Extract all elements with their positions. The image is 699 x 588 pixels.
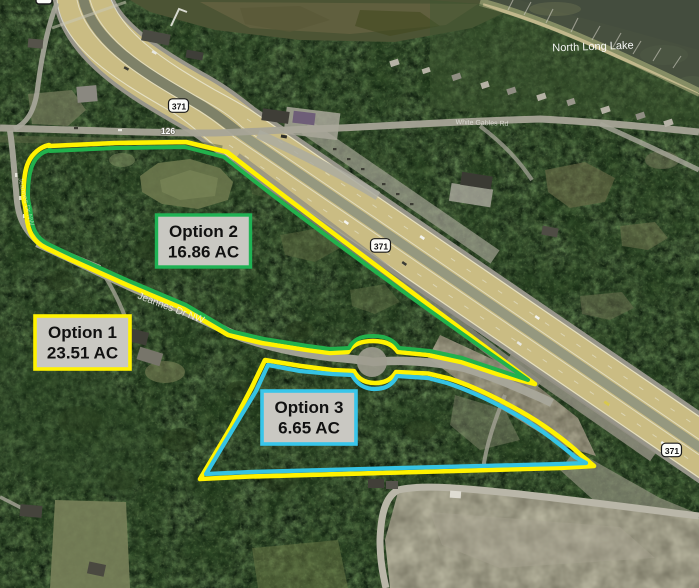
svg-text:Option 1: Option 1 <box>48 323 117 342</box>
svg-text:126: 126 <box>161 126 175 136</box>
svg-text:Option 3: Option 3 <box>275 398 344 417</box>
svg-text:23.51 AC: 23.51 AC <box>47 344 118 363</box>
svg-text:371: 371 <box>172 101 186 111</box>
svg-text:16.86 AC: 16.86 AC <box>168 243 239 262</box>
svg-text:Option 2: Option 2 <box>169 222 238 241</box>
svg-text:6.65 AC: 6.65 AC <box>278 419 340 438</box>
svg-text:371: 371 <box>374 241 388 251</box>
svg-text:371: 371 <box>665 446 679 456</box>
